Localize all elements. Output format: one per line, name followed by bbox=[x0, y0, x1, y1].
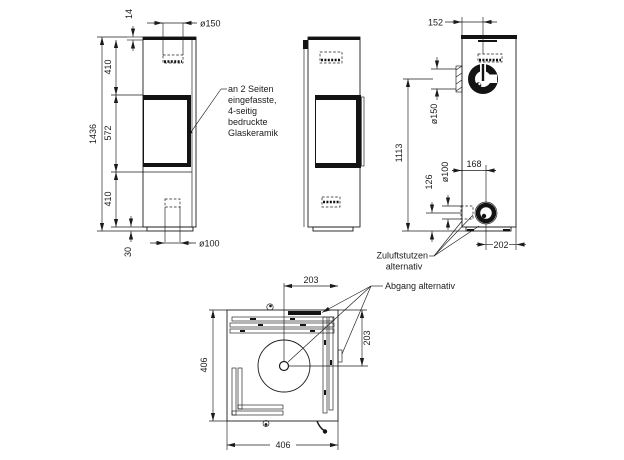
front-glass bbox=[144, 100, 187, 163]
back-top-plate bbox=[461, 35, 517, 39]
drawing-canvas: ø150 14 1436 410 572 410 30 ø100 bbox=[0, 0, 624, 460]
front-air-stub bbox=[165, 199, 180, 207]
glass-note-line-1: an 2 Seiten bbox=[228, 84, 274, 94]
air-inlet-annotation: Zuluftstutzen alternativ bbox=[376, 215, 479, 272]
glass-note-line-5: Glaskeramik bbox=[228, 128, 279, 138]
dim-front-total-height: 1436 bbox=[88, 124, 98, 144]
top-rear-slot bbox=[288, 311, 321, 315]
dim-back-air-offset: 168 bbox=[466, 159, 481, 169]
back-view bbox=[431, 35, 517, 232]
flue-alt-note: Abgang alternativ bbox=[385, 281, 456, 291]
dim-back-air-height: 126 bbox=[424, 174, 434, 189]
air-inlet-note-line-2: alternativ bbox=[386, 262, 423, 272]
dim-top-half-width: 203 bbox=[303, 275, 318, 285]
dim-front-air-diameter: ø100 bbox=[199, 239, 220, 249]
back-flue-collar bbox=[468, 63, 498, 94]
dim-front-upper-section: 410 bbox=[103, 59, 113, 74]
dim-top-width: 406 bbox=[275, 440, 290, 450]
dim-front-lower-section: 410 bbox=[103, 191, 113, 206]
top-flue-center bbox=[280, 362, 289, 371]
side-door-handle bbox=[362, 97, 365, 166]
side-view bbox=[303, 37, 364, 231]
front-base bbox=[147, 227, 193, 231]
front-view bbox=[143, 23, 196, 242]
dim-top-half-depth: 203 bbox=[362, 330, 372, 345]
technical-drawing: ø150 14 1436 410 572 410 30 ø100 bbox=[0, 0, 624, 460]
top-side-stub bbox=[338, 350, 342, 362]
side-base bbox=[313, 227, 353, 231]
dim-front-glass-height: 572 bbox=[103, 125, 113, 140]
glass-note-line-3: 4-seitig bbox=[228, 106, 257, 116]
dim-front-top-plate: 14 bbox=[124, 9, 134, 19]
front-top-plate bbox=[143, 37, 196, 40]
back-side-stub bbox=[431, 66, 462, 92]
top-view bbox=[227, 304, 342, 434]
side-rear-shield bbox=[303, 40, 308, 49]
glass-note-line-2: eingefasste, bbox=[228, 95, 277, 105]
air-inlet-note-line-1: Zuluftstutzen bbox=[376, 251, 428, 261]
glass-note-line-4: bedruckte bbox=[228, 117, 268, 127]
side-door-glass bbox=[316, 100, 356, 163]
dim-front-base-height: 30 bbox=[123, 247, 133, 257]
dim-top-depth: 406 bbox=[199, 357, 209, 372]
back-dimensions: 152 ø150 1113 126 ø100 168 202 bbox=[394, 17, 526, 250]
glass-annotation: an 2 Seiten eingefasste, 4-seitig bedruc… bbox=[190, 84, 279, 138]
flue-alt-annotation: Abgang alternativ bbox=[288, 281, 456, 362]
back-air-stub bbox=[461, 202, 497, 224]
dim-back-flue-diameter: ø150 bbox=[429, 104, 439, 125]
dim-back-flue-height: 1113 bbox=[394, 144, 404, 163]
dim-front-flue-diameter: ø150 bbox=[200, 19, 221, 29]
dim-back-air-diameter: ø100 bbox=[440, 162, 450, 183]
dim-back-air-right-offset: 202 bbox=[493, 240, 508, 250]
top-door-handle bbox=[317, 421, 324, 431]
dim-back-flue-offset: 152 bbox=[428, 18, 443, 28]
side-top-vent bbox=[320, 52, 342, 63]
